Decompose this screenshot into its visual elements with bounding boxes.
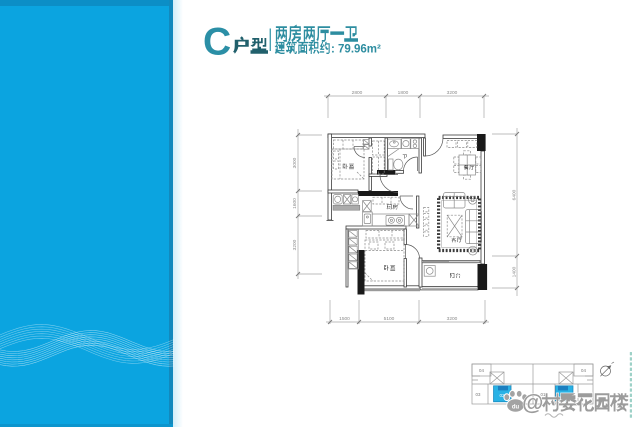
svg-text:: 79.96m²: : 79.96m² [331, 44, 381, 56]
svg-text:04: 04 [479, 368, 484, 373]
svg-text:1400: 1400 [512, 266, 518, 277]
svg-text:3000: 3000 [292, 157, 298, 168]
svg-text:du: du [512, 405, 520, 411]
svg-text:C: C [203, 21, 231, 64]
svg-text:6400: 6400 [512, 189, 518, 200]
svg-text:3200: 3200 [447, 90, 458, 96]
svg-text:1500: 1500 [339, 316, 350, 322]
svg-text:3200: 3200 [292, 239, 298, 250]
svg-text:03: 03 [476, 392, 481, 397]
svg-text:1800: 1800 [398, 90, 409, 96]
svg-text:04: 04 [581, 368, 586, 373]
svg-text:3200: 3200 [447, 316, 458, 322]
svg-text:1600: 1600 [292, 198, 298, 209]
svg-text:5100: 5100 [384, 316, 395, 322]
svg-text:@: @ [522, 390, 543, 415]
svg-text:2800: 2800 [352, 90, 363, 96]
